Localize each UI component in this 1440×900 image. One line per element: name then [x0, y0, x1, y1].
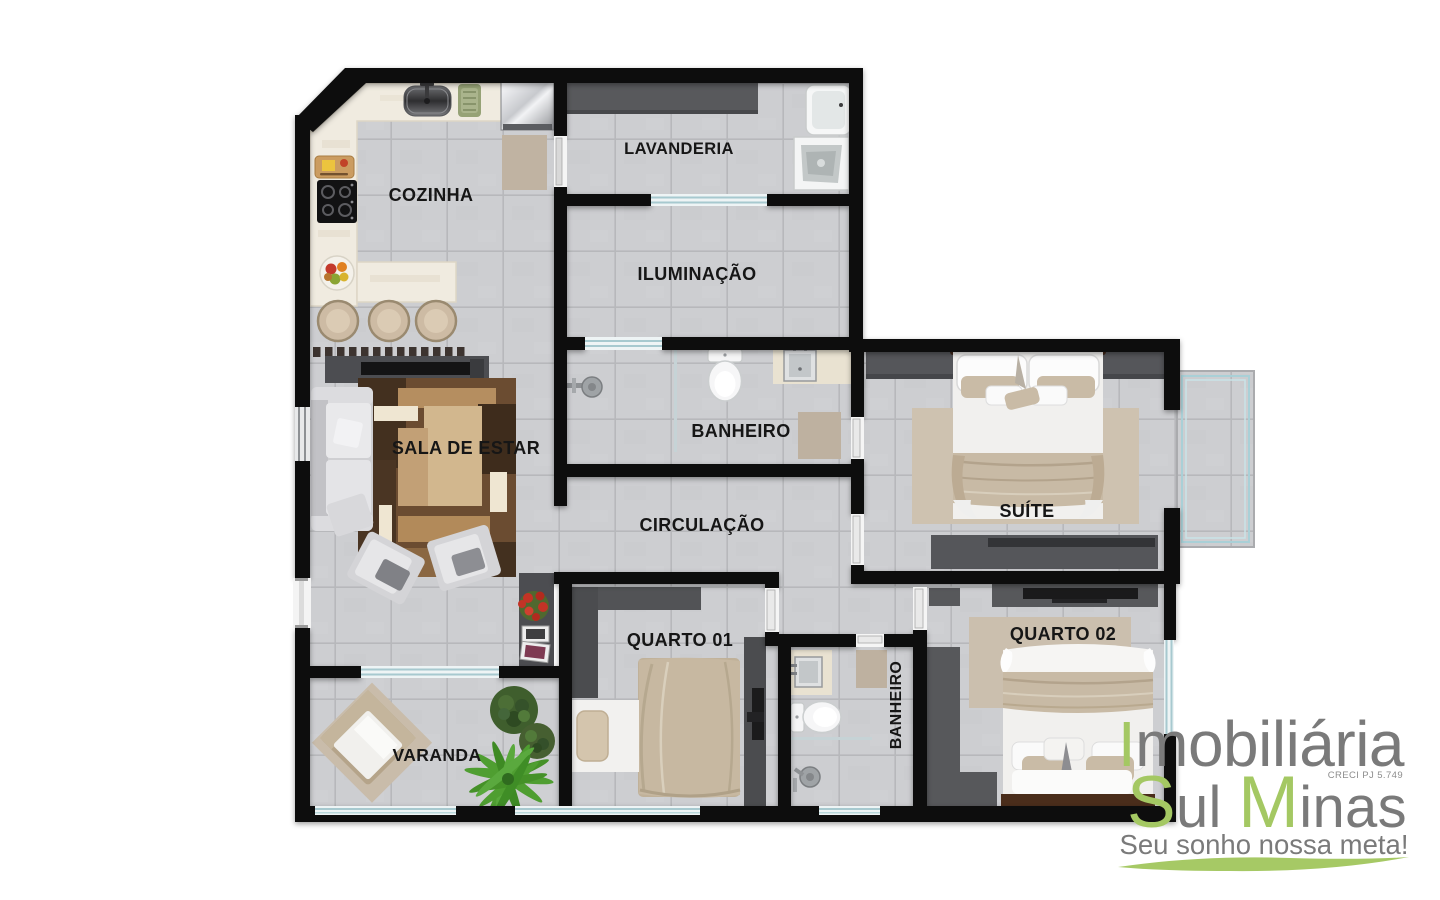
svg-text:QUARTO 01: QUARTO 01: [627, 630, 733, 650]
svg-text:SUÍTE: SUÍTE: [999, 500, 1054, 521]
svg-text:ILUMINAÇÃO: ILUMINAÇÃO: [638, 263, 757, 284]
svg-text:QUARTO 02: QUARTO 02: [1010, 624, 1116, 644]
svg-text:BANHEIRO: BANHEIRO: [888, 661, 905, 750]
svg-text:SALA DE ESTAR: SALA DE ESTAR: [392, 438, 540, 458]
svg-text:LAVANDERIA: LAVANDERIA: [624, 140, 734, 158]
svg-text:COZINHA: COZINHA: [389, 185, 474, 205]
svg-text:BANHEIRO: BANHEIRO: [691, 421, 790, 441]
svg-text:CIRCULAÇÃO: CIRCULAÇÃO: [640, 514, 765, 535]
svg-text:Seu sonho nossa meta!: Seu sonho nossa meta!: [1120, 829, 1409, 860]
svg-text:VARANDA: VARANDA: [392, 745, 481, 765]
